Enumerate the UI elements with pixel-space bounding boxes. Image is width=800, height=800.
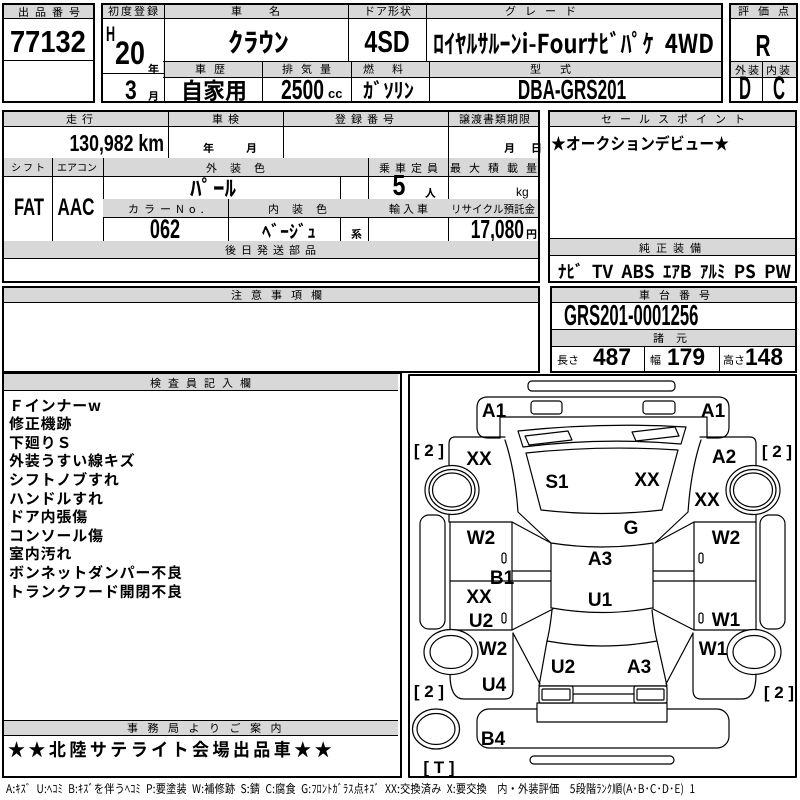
svg-text:W2: W2 (712, 528, 741, 549)
svg-text:A2: A2 (712, 447, 736, 468)
svg-text:XX: XX (466, 587, 492, 608)
svg-text:[ 2 ]: [ 2 ] (414, 441, 444, 460)
svg-text:W2: W2 (467, 528, 496, 549)
svg-text:[ 2 ]: [ 2 ] (762, 442, 792, 461)
svg-text:W2: W2 (479, 639, 508, 660)
svg-text:A1: A1 (701, 401, 726, 422)
svg-text:XX: XX (694, 490, 720, 511)
svg-text:B1: B1 (490, 568, 515, 589)
svg-text:U4: U4 (482, 675, 507, 696)
svg-text:XX: XX (466, 449, 492, 470)
svg-text:U1: U1 (588, 590, 613, 611)
svg-text:A1: A1 (482, 401, 507, 422)
svg-text:W1: W1 (712, 610, 741, 631)
svg-text:[ 2 ]: [ 2 ] (764, 683, 794, 702)
svg-text:U2: U2 (551, 657, 575, 678)
svg-text:A3: A3 (627, 657, 651, 678)
svg-text:W1: W1 (699, 639, 728, 660)
svg-text:B4: B4 (481, 729, 506, 750)
svg-text:XX: XX (634, 470, 660, 491)
svg-text:[ 2 ]: [ 2 ] (414, 682, 444, 701)
svg-text:A3: A3 (588, 549, 612, 570)
svg-text:G: G (624, 518, 639, 539)
svg-text:U2: U2 (469, 611, 493, 632)
svg-text:[ T ]: [ T ] (423, 758, 454, 777)
svg-text:S1: S1 (545, 472, 569, 493)
